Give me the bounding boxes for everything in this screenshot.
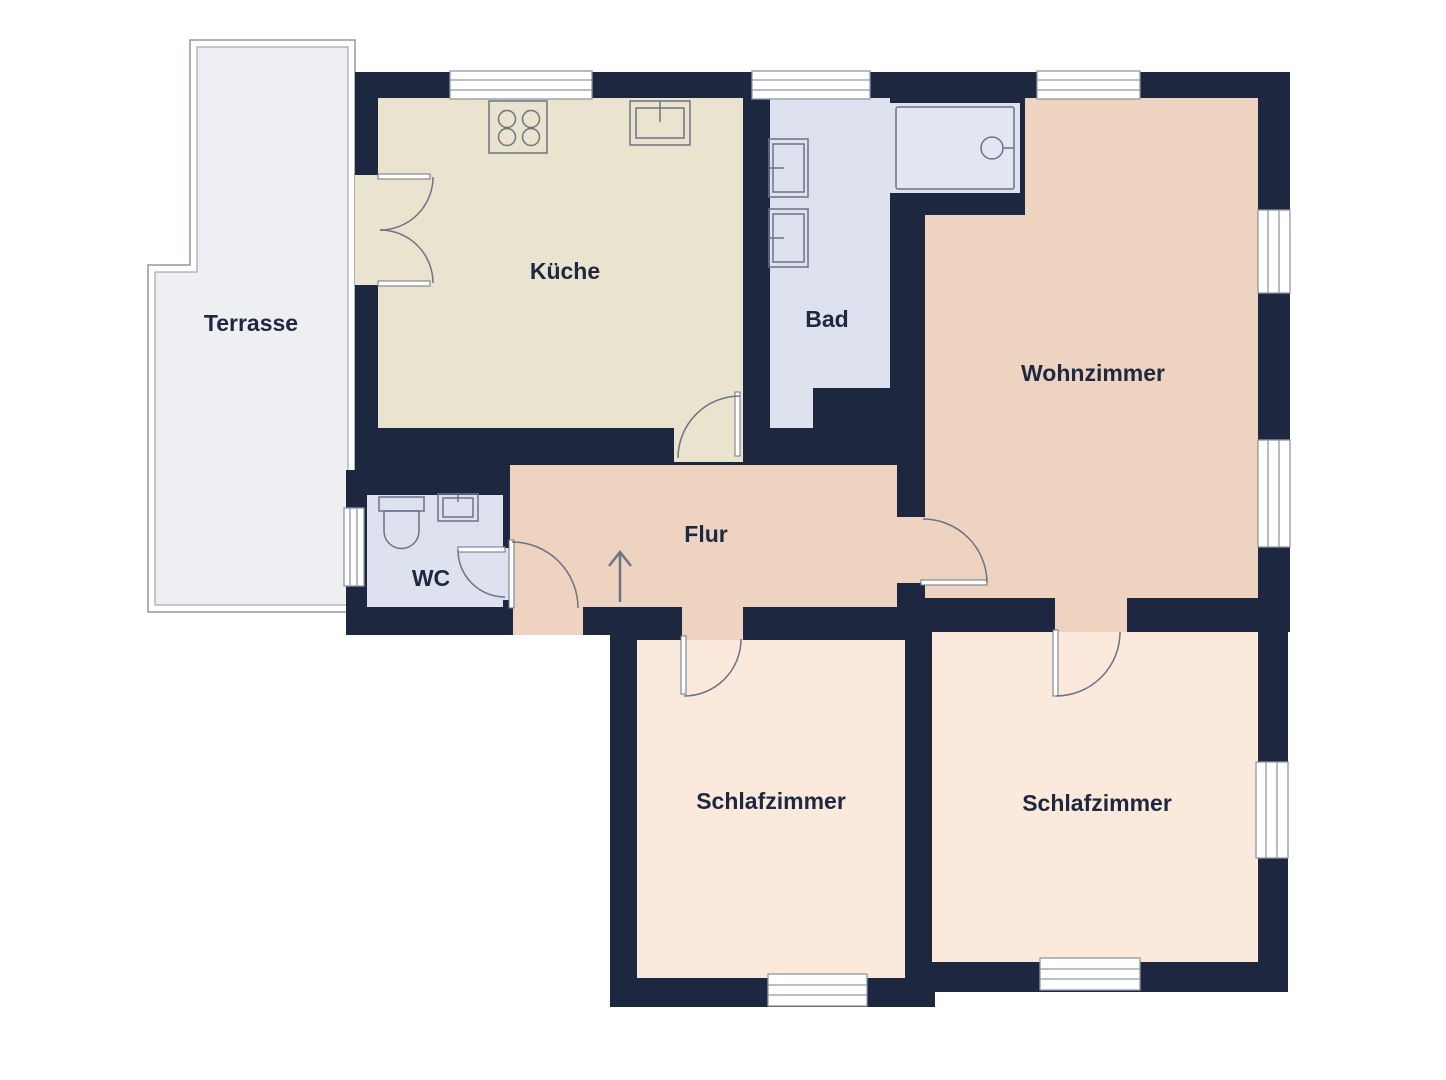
entrance-door-opening (513, 605, 583, 635)
label-wohnzimmer: Wohnzimmer (1021, 360, 1165, 386)
wohnzimmer-door-opening (897, 517, 925, 583)
room-bad-floor (770, 98, 890, 428)
terrace-door-opening (355, 175, 378, 285)
kitchen-door-opening (674, 428, 743, 462)
room-floors (355, 98, 1258, 978)
window-schlafzimmer-rechts-right (1256, 762, 1288, 858)
floorplan-svg: Terrasse Küche Bad Wohnzimmer Flur WC Sc… (0, 0, 1446, 1080)
window-schlafzimmer-links-bottom (768, 974, 867, 1006)
label-kueche: Küche (530, 258, 600, 284)
label-terrasse: Terrasse (204, 310, 298, 336)
label-schlafzimmer-rechts: Schlafzimmer (1022, 790, 1172, 816)
label-schlafzimmer-links: Schlafzimmer (696, 788, 846, 814)
label-bad: Bad (805, 306, 848, 332)
floorplan-canvas: Terrasse Küche Bad Wohnzimmer Flur WC Sc… (0, 0, 1446, 1080)
window-bad-top (752, 71, 870, 99)
window-wohnzimmer-right-1 (1258, 210, 1290, 293)
schlafzimmer-links-door-opening (682, 607, 743, 640)
bathtub-icon (896, 107, 1014, 189)
window-wc-left (344, 508, 364, 586)
window-wohnzimmer-top (1037, 71, 1140, 99)
label-wc: WC (412, 565, 450, 591)
window-schlafzimmer-rechts-bottom (1040, 958, 1140, 990)
schlafzimmer-rechts-door-opening (1055, 598, 1127, 632)
label-flur: Flur (684, 521, 727, 547)
window-kueche-top (450, 71, 592, 99)
window-wohnzimmer-right-2 (1258, 440, 1290, 547)
